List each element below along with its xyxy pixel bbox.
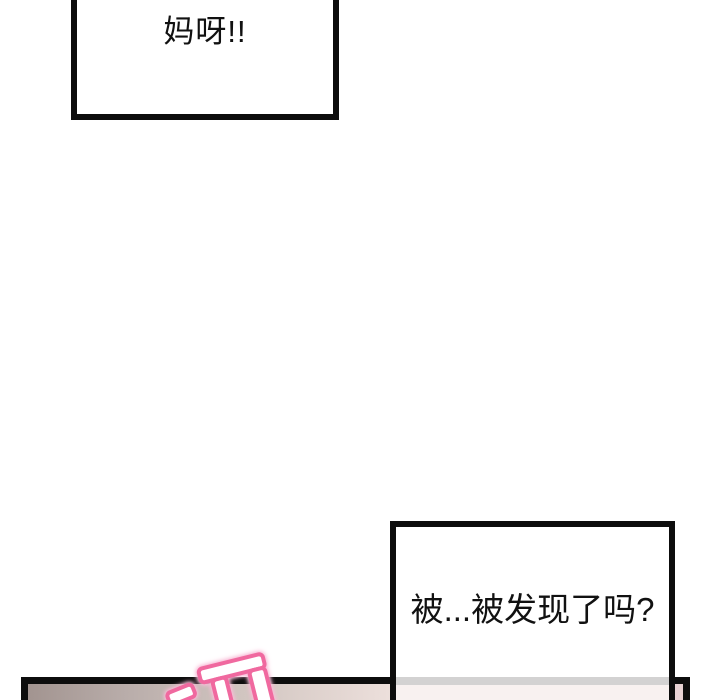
sfx-right-leg-stroke: [249, 667, 275, 700]
sfx-left-leg-stroke: [212, 677, 233, 700]
speech-bubble-bottom: 被...被发现了吗?: [390, 521, 675, 700]
panel-border-showthrough: [396, 677, 669, 685]
panel-fill-showthrough: [396, 685, 669, 700]
sfx-dash-stroke: [166, 684, 196, 700]
speech-text-top: 妈呀!!: [77, 14, 333, 50]
speech-bubble-top: 妈呀!!: [71, 0, 339, 120]
comic-page: 妈呀!! 被...被发现了吗?: [0, 0, 720, 700]
impact-sfx-icon: [148, 636, 278, 700]
speech-text-bottom: 被...被发现了吗?: [396, 591, 669, 629]
